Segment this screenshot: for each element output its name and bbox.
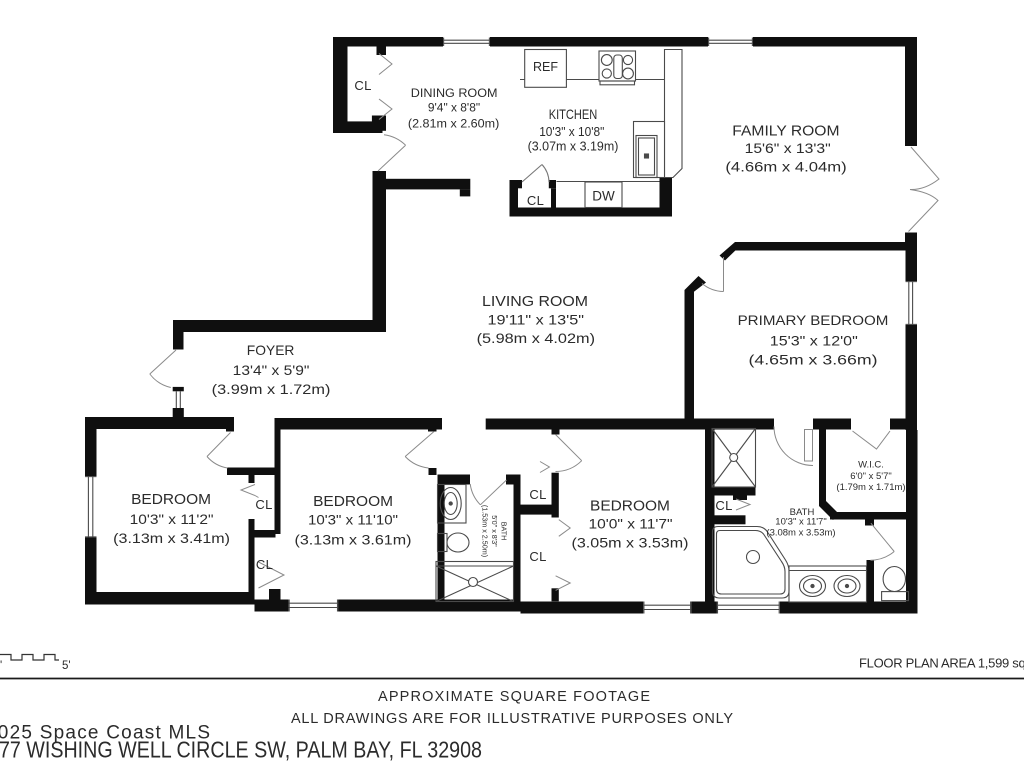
svg-text:6'0" x 5'7": 6'0" x 5'7" <box>850 471 892 482</box>
svg-text:PRIMARY BEDROOM: PRIMARY BEDROOM <box>738 313 889 329</box>
svg-text:(3.05m x 3.53m): (3.05m x 3.53m) <box>572 535 689 551</box>
svg-text:W.I.C.: W.I.C. <box>858 460 884 471</box>
svg-text:877 WISHING WELL CIRCLE SW, PA: 877 WISHING WELL CIRCLE SW, PALM BAY, FL… <box>0 737 482 763</box>
svg-text:10'3" x 11'10": 10'3" x 11'10" <box>308 512 398 528</box>
svg-text:13'4" x 5'9": 13'4" x 5'9" <box>233 363 310 378</box>
svg-text:CL: CL <box>527 193 544 208</box>
svg-text:BEDROOM: BEDROOM <box>590 499 670 515</box>
svg-text:5': 5' <box>62 660 71 672</box>
svg-text:BATH: BATH <box>500 522 509 541</box>
svg-text:10'0" x 11'7": 10'0" x 11'7" <box>589 516 673 532</box>
svg-text:CL: CL <box>529 549 546 564</box>
svg-text:(2.81m x 2.60m): (2.81m x 2.60m) <box>408 117 499 131</box>
svg-text:CL: CL <box>255 497 272 512</box>
svg-text:(4.65m x 3.66m): (4.65m x 3.66m) <box>749 352 878 368</box>
svg-text:ALL DRAWINGS ARE FOR ILLUSTRAT: ALL DRAWINGS ARE FOR ILLUSTRATIVE PURPOS… <box>291 711 733 727</box>
svg-text:KITCHEN: KITCHEN <box>549 106 598 122</box>
svg-text:CL: CL <box>354 78 371 93</box>
svg-text:LIVING ROOM: LIVING ROOM <box>482 294 588 310</box>
svg-text:(4.66m x 4.04m): (4.66m x 4.04m) <box>725 160 846 176</box>
svg-text:DINING ROOM: DINING ROOM <box>411 86 498 100</box>
svg-text:10'3" x 11'2": 10'3" x 11'2" <box>130 511 214 527</box>
svg-text:DW: DW <box>592 189 615 204</box>
svg-text:BEDROOM: BEDROOM <box>313 494 393 510</box>
svg-text:CL: CL <box>256 557 273 572</box>
svg-text:FLOOR PLAN AREA 1,599 sq.ft.: FLOOR PLAN AREA 1,599 sq.ft. <box>859 656 1024 671</box>
svg-text:(3.08m x 3.53m): (3.08m x 3.53m) <box>766 528 835 539</box>
svg-text:APPROXIMATE SQUARE FOOTAGE: APPROXIMATE SQUARE FOOTAGE <box>378 689 650 705</box>
svg-text:(1.53m x 2.50m): (1.53m x 2.50m) <box>481 505 490 557</box>
svg-text:(3.13m x 3.61m): (3.13m x 3.61m) <box>295 532 412 548</box>
svg-text:10'3" x 11'7": 10'3" x 11'7" <box>775 517 826 528</box>
svg-text:(3.99m x 1.72m): (3.99m x 1.72m) <box>212 382 331 397</box>
svg-text:(1.79m x 1.71m): (1.79m x 1.71m) <box>836 482 905 493</box>
svg-text:FAMILY ROOM: FAMILY ROOM <box>732 124 839 140</box>
svg-text:REF: REF <box>533 60 558 74</box>
svg-text:(3.13m x 3.41m): (3.13m x 3.41m) <box>113 530 230 546</box>
svg-text:5'0" x 8'3": 5'0" x 8'3" <box>490 515 499 547</box>
svg-text:15'3" x 12'0": 15'3" x 12'0" <box>770 333 858 349</box>
svg-text:BEDROOM: BEDROOM <box>131 492 211 508</box>
svg-text:15'6" x 13'3": 15'6" x 13'3" <box>745 141 831 157</box>
svg-text:19'11" x 13'5": 19'11" x 13'5" <box>488 313 585 329</box>
svg-text:10'3" x 10'8": 10'3" x 10'8" <box>539 124 604 139</box>
svg-text:CL: CL <box>529 487 546 502</box>
svg-text:(3.07m x 3.19m): (3.07m x 3.19m) <box>528 139 619 154</box>
svg-text:FOYER: FOYER <box>247 342 295 358</box>
svg-text:9'4" x 8'8": 9'4" x 8'8" <box>428 101 480 115</box>
svg-text:': ' <box>0 660 2 672</box>
svg-text:CL: CL <box>715 498 732 513</box>
svg-text:(5.98m x 4.02m): (5.98m x 4.02m) <box>477 331 595 347</box>
